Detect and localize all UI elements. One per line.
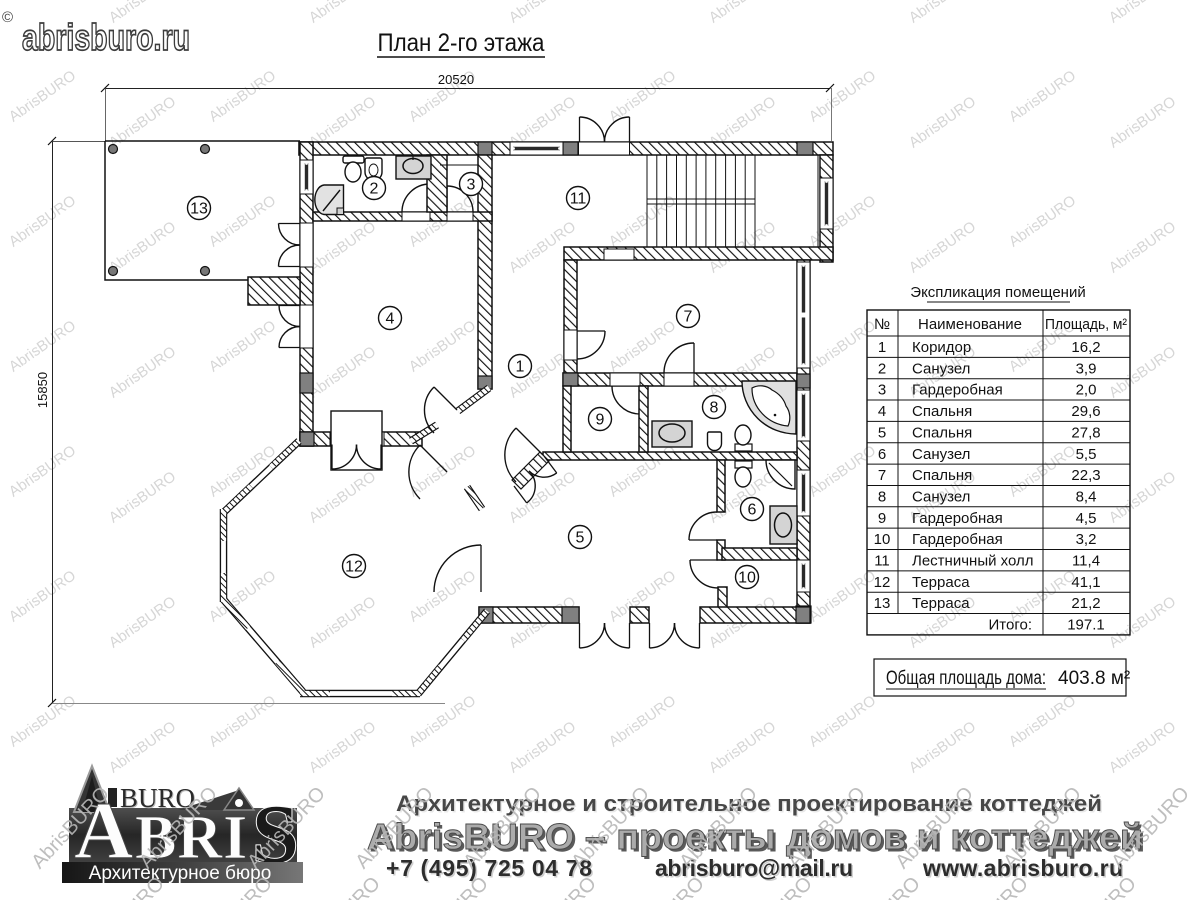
svg-text:Терраса: Терраса: [912, 595, 970, 612]
svg-text:Площадь, м²: Площадь, м²: [1045, 316, 1127, 333]
svg-text:6: 6: [878, 446, 886, 463]
svg-text:Общая площадь дома:: Общая площадь дома:: [886, 668, 1046, 689]
svg-text:3: 3: [467, 177, 476, 194]
svg-text:7: 7: [878, 467, 886, 484]
svg-text:5,5: 5,5: [1076, 446, 1097, 463]
svg-text:11: 11: [874, 553, 890, 570]
svg-text:21,2: 21,2: [1071, 595, 1100, 612]
svg-text:abrisburo.ru: abrisburo.ru: [22, 17, 190, 58]
svg-text:22,3: 22,3: [1071, 467, 1100, 484]
svg-text:+7 (495) 725 04 78: +7 (495) 725 04 78: [386, 855, 592, 881]
svg-text:Терраса: Терраса: [912, 574, 970, 591]
svg-text:1: 1: [516, 359, 525, 376]
svg-text:10: 10: [874, 531, 891, 548]
svg-text:12: 12: [345, 559, 363, 576]
svg-text:13: 13: [190, 201, 208, 218]
svg-text:8: 8: [878, 489, 886, 506]
svg-text:9: 9: [596, 412, 605, 429]
svg-text:12: 12: [874, 574, 891, 591]
svg-text:16,2: 16,2: [1071, 339, 1100, 356]
svg-text:11,4: 11,4: [1072, 553, 1100, 570]
svg-text:4: 4: [386, 311, 395, 328]
svg-text:7: 7: [684, 309, 693, 326]
svg-text:2: 2: [370, 181, 379, 198]
svg-text:Санузел: Санузел: [912, 446, 970, 463]
svg-text:27,8: 27,8: [1071, 424, 1100, 441]
svg-text:29,6: 29,6: [1071, 403, 1100, 420]
svg-text:Спальня: Спальня: [912, 403, 972, 420]
svg-text:20520: 20520: [438, 72, 474, 87]
svg-text:9: 9: [878, 510, 886, 527]
svg-text:№: №: [874, 316, 890, 333]
svg-text:13: 13: [874, 595, 891, 612]
svg-text:Экспликация помещений: Экспликация помещений: [910, 284, 1085, 301]
svg-text:10: 10: [738, 570, 756, 587]
svg-text:403.8 м²: 403.8 м²: [1058, 668, 1130, 689]
svg-text:2: 2: [878, 360, 886, 377]
svg-text:197.1: 197.1: [1067, 617, 1105, 634]
svg-text:План 2-го этажа: План 2-го этажа: [378, 29, 545, 57]
svg-text:Гардеробная: Гардеробная: [912, 382, 1003, 399]
svg-text:Санузел: Санузел: [912, 360, 970, 377]
svg-text:3,2: 3,2: [1076, 531, 1097, 548]
svg-text:3,9: 3,9: [1076, 360, 1097, 377]
svg-text:8,4: 8,4: [1076, 489, 1097, 506]
svg-text:8: 8: [710, 400, 719, 417]
svg-text:Спальня: Спальня: [912, 467, 972, 484]
svg-text:15850: 15850: [35, 372, 50, 408]
svg-text:4,5: 4,5: [1076, 510, 1097, 527]
svg-text:Архитектурное бюро: Архитектурное бюро: [89, 863, 272, 884]
svg-text:Лестничный холл: Лестничный холл: [912, 553, 1034, 570]
svg-text:Коридор: Коридор: [912, 339, 971, 356]
svg-text:Итого:: Итого:: [989, 617, 1032, 634]
svg-text:6: 6: [748, 502, 757, 519]
svg-text:5: 5: [576, 530, 585, 547]
svg-text:4: 4: [878, 403, 886, 420]
svg-text:2,0: 2,0: [1076, 382, 1097, 399]
svg-text:1: 1: [878, 339, 886, 356]
svg-text:Гардеробная: Гардеробная: [912, 510, 1003, 527]
svg-text:©: ©: [2, 9, 13, 26]
svg-text:11: 11: [570, 191, 587, 208]
svg-text:3: 3: [878, 382, 886, 399]
svg-text:5: 5: [878, 424, 886, 441]
svg-text:Спальня: Спальня: [912, 424, 972, 441]
svg-text:Гардеробная: Гардеробная: [912, 531, 1003, 548]
svg-text:Санузел: Санузел: [912, 489, 970, 506]
svg-text:41,1: 41,1: [1071, 574, 1100, 591]
svg-text:Наименование: Наименование: [918, 316, 1022, 333]
